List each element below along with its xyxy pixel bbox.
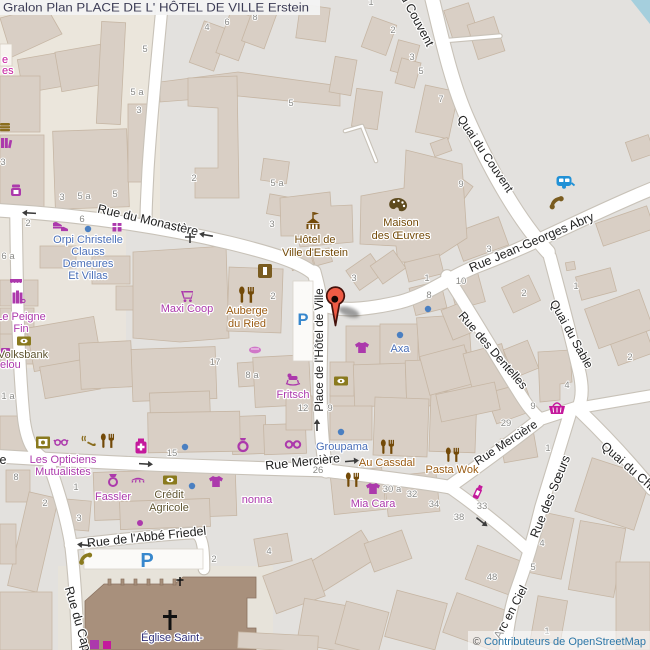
svg-text:Fin: Fin xyxy=(13,323,28,335)
svg-text:Demeures: Demeures xyxy=(63,258,114,270)
svg-text:3: 3 xyxy=(76,513,81,524)
svg-text:3: 3 xyxy=(351,273,356,284)
svg-text:Maison: Maison xyxy=(383,217,418,229)
svg-text:Fritsch: Fritsch xyxy=(277,389,310,401)
svg-text:Maxi Coop: Maxi Coop xyxy=(161,303,214,315)
svg-text:Les Opticiens: Les Opticiens xyxy=(30,454,97,466)
svg-text:3: 3 xyxy=(269,219,274,230)
svg-text:1: 1 xyxy=(573,281,578,292)
svg-text:3: 3 xyxy=(136,105,141,116)
svg-text:Ville d'Erstein: Ville d'Erstein xyxy=(282,247,348,259)
svg-text:2: 2 xyxy=(25,218,30,229)
svg-text:3: 3 xyxy=(409,52,414,63)
svg-text:6: 6 xyxy=(224,17,229,28)
svg-text:Mia Cara: Mia Cara xyxy=(351,498,397,510)
svg-text:Hôtel de: Hôtel de xyxy=(295,234,336,246)
svg-text:7: 7 xyxy=(438,94,443,105)
svg-text:2: 2 xyxy=(390,25,395,36)
svg-text:34: 34 xyxy=(429,499,440,510)
svg-text:Volksbank: Volksbank xyxy=(0,349,49,361)
svg-text:Le Peigne: Le Peigne xyxy=(0,311,46,323)
svg-text:Auberge: Auberge xyxy=(226,305,268,317)
svg-text:38: 38 xyxy=(454,512,465,523)
svg-text:8: 8 xyxy=(426,290,431,301)
svg-text:2: 2 xyxy=(42,498,47,509)
svg-text:es: es xyxy=(2,65,14,77)
svg-text:5 a: 5 a xyxy=(270,178,284,189)
svg-text:Fassler: Fassler xyxy=(95,491,131,503)
svg-text:2: 2 xyxy=(211,554,216,565)
svg-text:Orpi Christelle: Orpi Christelle xyxy=(53,234,123,246)
svg-text:© Contributeurs de OpenStreetM: © Contributeurs de OpenStreetMap xyxy=(473,636,646,648)
svg-text:5: 5 xyxy=(418,66,423,77)
svg-text:P: P xyxy=(297,311,308,329)
svg-text:4: 4 xyxy=(539,538,544,549)
svg-text:2: 2 xyxy=(270,291,275,302)
svg-text:6 a: 6 a xyxy=(1,251,15,262)
svg-text:15: 15 xyxy=(167,448,178,459)
svg-text:Axa: Axa xyxy=(391,343,411,355)
svg-text:10: 10 xyxy=(456,276,467,287)
svg-text:1: 1 xyxy=(73,482,78,493)
svg-text:4: 4 xyxy=(564,380,569,391)
svg-text:e: e xyxy=(0,453,7,467)
svg-text:30 a: 30 a xyxy=(383,484,402,495)
svg-text:Pasta Wok: Pasta Wok xyxy=(426,464,479,476)
svg-text:Gralon Plan PLACE DE L' HÔTEL: Gralon Plan PLACE DE L' HÔTEL DE VILLE E… xyxy=(3,0,309,15)
svg-text:1: 1 xyxy=(545,443,550,454)
svg-text:Place de l'Hôtel de Ville: Place de l'Hôtel de Ville xyxy=(312,288,326,412)
svg-text:9: 9 xyxy=(458,179,463,190)
svg-text:Au Cassdal: Au Cassdal xyxy=(359,457,415,469)
svg-text:du Ried: du Ried xyxy=(228,318,266,330)
svg-text:9: 9 xyxy=(327,403,332,414)
svg-text:5: 5 xyxy=(288,98,293,109)
svg-text:5: 5 xyxy=(530,562,535,573)
svg-text:2: 2 xyxy=(191,173,196,184)
svg-text:1 a: 1 a xyxy=(1,391,15,402)
svg-text:nonna: nonna xyxy=(242,494,273,506)
svg-text:Agricole: Agricole xyxy=(149,502,189,514)
svg-text:2: 2 xyxy=(627,352,632,363)
svg-text:8 a: 8 a xyxy=(245,370,259,381)
svg-text:5 a: 5 a xyxy=(130,87,144,98)
svg-text:Groupama: Groupama xyxy=(316,441,369,453)
svg-text:6: 6 xyxy=(79,214,84,225)
svg-text:P: P xyxy=(140,550,153,572)
svg-text:8: 8 xyxy=(13,472,18,483)
svg-text:1: 1 xyxy=(424,273,429,284)
svg-text:3: 3 xyxy=(0,157,5,168)
svg-text:17: 17 xyxy=(210,357,221,368)
svg-text:9: 9 xyxy=(530,401,535,412)
svg-text:5: 5 xyxy=(142,44,147,55)
svg-text:48: 48 xyxy=(487,572,498,583)
svg-text:29: 29 xyxy=(501,418,512,429)
svg-text:Mutualistes: Mutualistes xyxy=(35,466,91,478)
svg-text:des Œuvres: des Œuvres xyxy=(372,230,431,242)
svg-text:Crédit: Crédit xyxy=(154,489,183,501)
svg-text:33: 33 xyxy=(477,501,488,512)
svg-text:2: 2 xyxy=(521,288,526,299)
svg-text:Clauss: Clauss xyxy=(71,246,105,258)
svg-text:5: 5 xyxy=(112,189,117,200)
svg-text:3: 3 xyxy=(59,192,64,203)
svg-text:4: 4 xyxy=(266,546,271,557)
svg-text:3: 3 xyxy=(486,244,491,255)
svg-text:32: 32 xyxy=(407,489,418,500)
svg-text:5 a: 5 a xyxy=(77,191,91,202)
svg-text:1: 1 xyxy=(368,0,373,8)
svg-text:4: 4 xyxy=(204,22,209,33)
svg-text:Église Saint-: Église Saint- xyxy=(141,631,203,644)
svg-text:26: 26 xyxy=(313,465,324,476)
svg-text:Et Villas: Et Villas xyxy=(68,270,108,282)
svg-text:12: 12 xyxy=(298,403,309,414)
